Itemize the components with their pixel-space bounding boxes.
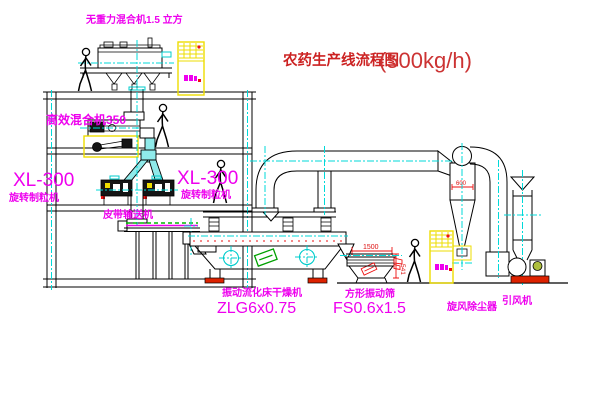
label-granulator-left-name: 旋转制粒机 bbox=[8, 191, 59, 204]
induced-draft-fan bbox=[508, 258, 549, 283]
cyclone-dust-collector bbox=[450, 143, 475, 270]
indicator-light bbox=[197, 45, 200, 48]
worker-4 bbox=[408, 239, 421, 282]
label-dryer-model: ZLG6x0.75 bbox=[217, 300, 296, 317]
belt-conveyor bbox=[118, 221, 200, 279]
label-sieve-model: FS0.6x1.5 bbox=[333, 300, 406, 317]
title-capacity: (500kg/h) bbox=[379, 48, 472, 73]
label-granulator-right-model: XL-300 bbox=[177, 168, 238, 189]
worker-2 bbox=[156, 104, 169, 147]
cad-flow-diagram: 农药生产线流程图 (500kg/h) 无重力混合机1.5 立方 高效混合机350… bbox=[0, 0, 600, 403]
label-dryer-name: 振动流化床干燥机 bbox=[222, 286, 302, 299]
label-granulator-left-model: XL-300 bbox=[13, 170, 74, 191]
label-sieve-name: 方形振动筛 bbox=[345, 287, 395, 300]
control-cabinet-top bbox=[178, 42, 204, 95]
dim-sieve-length: 1500 bbox=[363, 244, 379, 251]
control-cabinet-right bbox=[430, 231, 453, 283]
indicator-light bbox=[446, 234, 449, 237]
dim-cyclone-body: 600 bbox=[456, 181, 467, 187]
dim-sieve-height: 541 bbox=[399, 264, 406, 275]
diagram-canvas: 农药生产线流程图 (500kg/h) 无重力混合机1.5 立方 高效混合机350… bbox=[0, 0, 600, 403]
fan-inlet-pipe bbox=[470, 147, 509, 278]
label-cyclone: 旋风除尘器 bbox=[446, 300, 498, 313]
label-belt-conveyor: 皮带输送机 bbox=[102, 208, 153, 221]
label-fan: 引风机 bbox=[502, 294, 532, 307]
brand-logo bbox=[255, 249, 278, 266]
label-granulator-right-name: 旋转制粒机 bbox=[180, 188, 231, 201]
worker-1 bbox=[79, 48, 92, 91]
exhaust-duct bbox=[250, 146, 470, 215]
label-gravity-mixer: 无重力混合机1.5 立方 bbox=[85, 13, 183, 26]
label-high-eff-mixer: 高效混合机350 bbox=[46, 112, 126, 127]
